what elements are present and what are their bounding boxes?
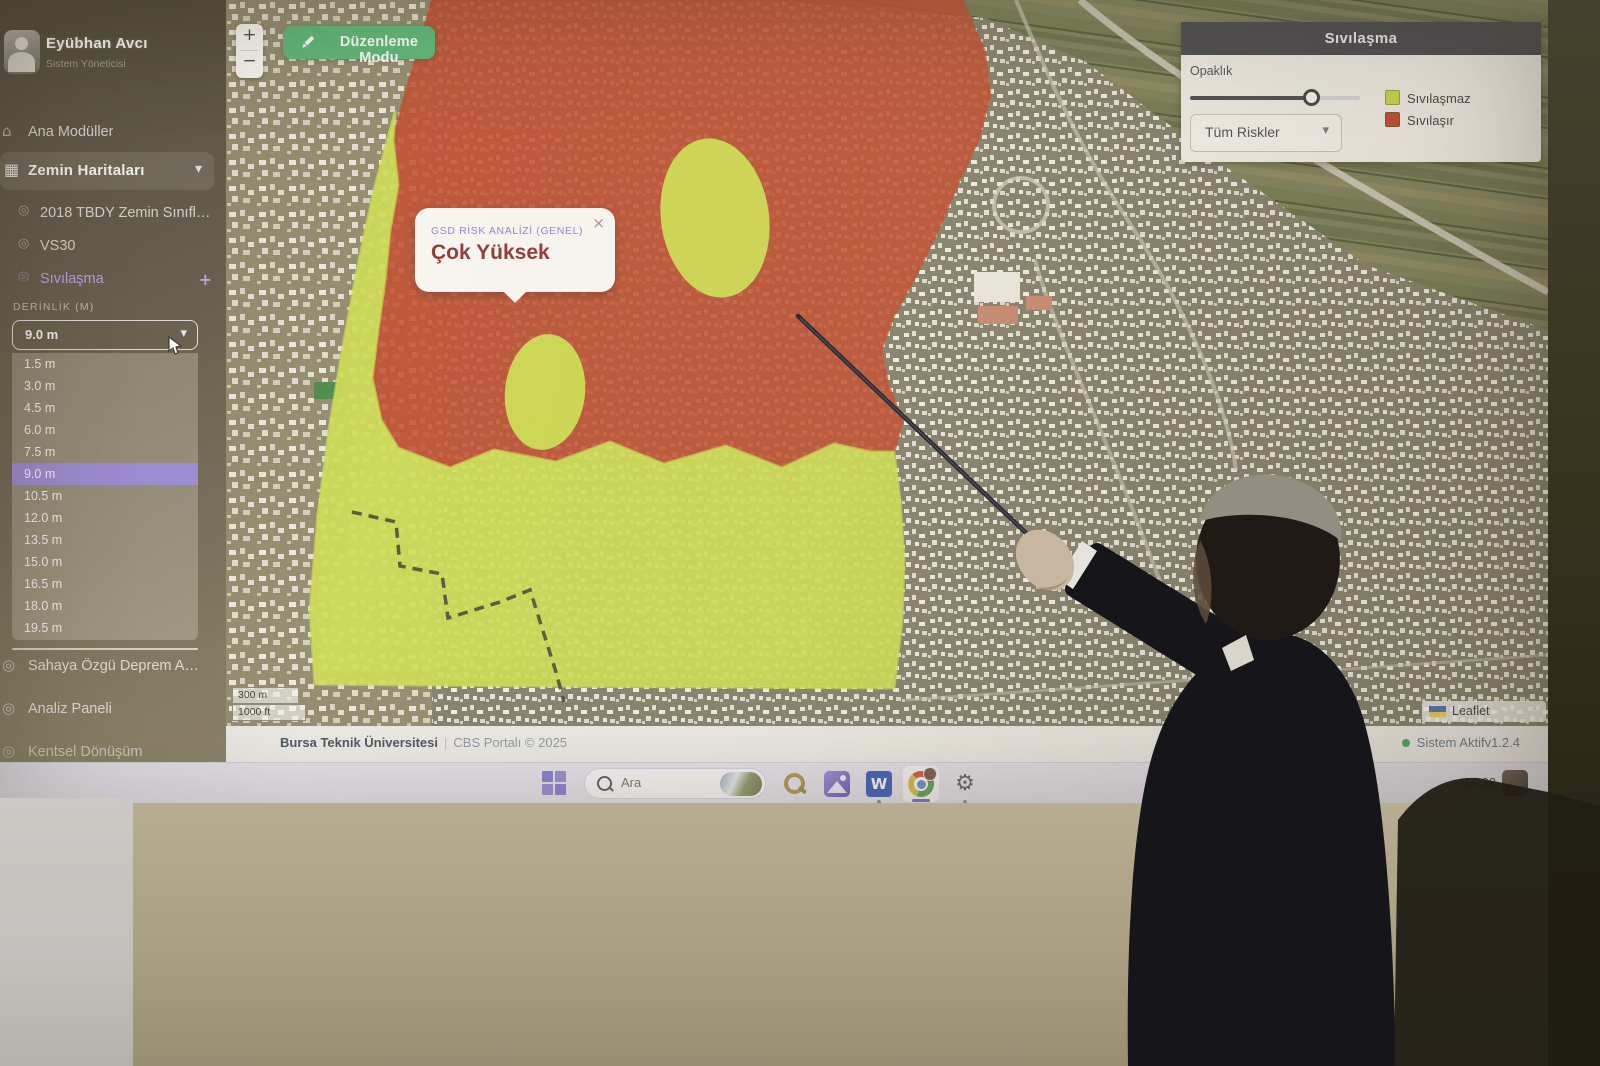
sidebar-item-zemin-haritalari[interactable]: ▦ Zemin Haritaları ▾	[0, 152, 214, 190]
depth-option[interactable]: 6.0 m	[12, 419, 198, 441]
status-dot	[1402, 739, 1410, 747]
analysis-icon: ◎	[2, 656, 15, 674]
leaflet-link[interactable]: Leaflet	[1452, 704, 1490, 718]
sidebar-item-sivilasma[interactable]: ◎ Sıvılaşma +	[0, 265, 226, 297]
layer-bullet-icon: ◎	[18, 203, 29, 218]
panel-icon: ◎	[2, 699, 15, 717]
depth-option[interactable]: 18.0 m	[12, 595, 198, 617]
app-footer: Bursa Teknik Üniversitesi|CBS Portalı © …	[226, 726, 1548, 762]
opacity-label: Opaklık	[1190, 64, 1232, 78]
word-app-icon[interactable]: W	[866, 771, 892, 797]
wall-corner-panel	[0, 798, 133, 1066]
user-role: Sistem Yöneticisi	[46, 58, 126, 70]
divider	[12, 648, 198, 650]
map-zoom-control: + −	[236, 24, 263, 78]
depth-option[interactable]: 10.5 m	[12, 485, 198, 507]
layer-panel: Sıvılaşma Opaklık Tüm Riskler ▾ Sıvılaşm…	[1181, 22, 1541, 162]
scalebar-metric: 300 m	[232, 687, 299, 704]
taskbar: W ⚙ 14:38	[0, 762, 1548, 804]
risk-filter-select[interactable]: Tüm Riskler ▾	[1190, 114, 1342, 152]
windows-start-button[interactable]	[542, 771, 567, 796]
chrome-active-indicator	[912, 799, 930, 802]
search-app-icon[interactable]	[782, 771, 808, 797]
chrome-profile-badge	[923, 767, 937, 781]
sidebar-item-2018-tbdy[interactable]: ◎ 2018 TBDY Zemin Sınıflandı...	[0, 199, 226, 231]
wall	[1548, 0, 1600, 1066]
depth-dropdown-list: 1.5 m 3.0 m 4.5 m 6.0 m 7.5 m 9.0 m 10.5…	[12, 353, 198, 640]
depth-option[interactable]: 16.5 m	[12, 573, 198, 595]
depth-option[interactable]: 7.5 m	[12, 441, 198, 463]
scalebar-imperial: 1000 ft	[232, 704, 306, 721]
sidebar-item-ana-moduller[interactable]: ⌂ Ana Modüller	[0, 118, 226, 150]
leaflet-attribution: Leaflet	[1422, 701, 1546, 722]
depth-option[interactable]: 19.5 m	[12, 617, 198, 639]
risk-popup: GSD RİSK ANALİZİ (GENEL) Çok Yüksek ×	[415, 208, 615, 292]
depth-option[interactable]: 3.0 m	[12, 375, 198, 397]
wall	[0, 803, 1548, 1066]
depth-option-selected[interactable]: 9.0 m	[12, 463, 198, 485]
photos-app-icon[interactable]	[824, 771, 850, 797]
close-icon[interactable]: ×	[592, 214, 605, 232]
depth-label: DERİNLİK (M)	[13, 301, 95, 313]
slider-knob[interactable]	[1303, 89, 1320, 106]
edit-mode-button[interactable]: Düzenleme Modu	[283, 26, 435, 59]
opacity-slider[interactable]	[1190, 94, 1360, 102]
pencil-icon	[301, 35, 316, 53]
map-canvas[interactable]: + − Düzenleme Modu GSD RİSK ANALİZİ (GEN…	[226, 0, 1548, 726]
system-status: Sistem Aktifv1.2.4	[1402, 735, 1520, 750]
depth-option[interactable]: 4.5 m	[12, 397, 198, 419]
ukraine-flag-icon	[1429, 706, 1446, 717]
layers-icon: ▦	[4, 160, 19, 179]
chevron-down-icon: ▾	[195, 161, 202, 177]
mouse-cursor-icon	[168, 336, 184, 361]
depth-option[interactable]: 12.0 m	[12, 507, 198, 529]
taskbar-clock[interactable]: 14:38	[1440, 775, 1496, 790]
zoom-in-button[interactable]: +	[236, 25, 263, 45]
search-input[interactable]	[619, 774, 703, 791]
sidebar-item-vs30[interactable]: ◎ VS30	[0, 232, 226, 264]
settings-app-icon[interactable]: ⚙	[952, 771, 978, 797]
search-icon	[597, 776, 612, 791]
tray-app-icon[interactable]	[1502, 770, 1528, 796]
depth-selected-value: 9.0 m	[25, 327, 58, 342]
legend-swatch-red	[1385, 112, 1400, 127]
projected-screen: Eyübhan Avcı Sistem Yöneticisi ⌂ Ana Mod…	[0, 0, 1548, 803]
search-highlight-thumbnail	[720, 772, 762, 796]
layer-bullet-icon: ◎	[18, 236, 29, 251]
legend-swatch-yellow	[1385, 90, 1400, 105]
layer-bullet-icon: ◎	[18, 269, 29, 284]
zoom-out-button[interactable]: −	[236, 51, 263, 71]
user-name: Eyübhan Avcı	[46, 35, 148, 52]
sidebar-item-sahaya-ozgu-deprem-analizi[interactable]: ◎ Sahaya Özgü Deprem Analizi	[0, 652, 226, 684]
avatar	[4, 30, 40, 74]
transform-icon: ◎	[2, 742, 15, 760]
popup-value: Çok Yüksek	[431, 241, 550, 265]
footer-portal: CBS Portalı © 2025	[453, 735, 567, 750]
photo-of-projected-screen: Eyübhan Avcı Sistem Yöneticisi ⌂ Ana Mod…	[0, 0, 1600, 1066]
panel-title: Sıvılaşma	[1181, 22, 1541, 55]
chevron-down-icon: ▾	[1322, 123, 1329, 138]
sidebar-item-analiz-paneli[interactable]: ◎ Analiz Paneli	[0, 695, 226, 727]
plus-icon[interactable]: +	[199, 270, 212, 289]
popup-title: GSD RİSK ANALİZİ (GENEL)	[431, 225, 583, 237]
sidebar: Eyübhan Avcı Sistem Yöneticisi ⌂ Ana Mod…	[0, 0, 226, 762]
taskbar-search[interactable]	[584, 768, 766, 799]
footer-org: Bursa Teknik Üniversitesi	[280, 735, 438, 750]
chrome-app-icon[interactable]	[908, 771, 934, 797]
home-icon: ⌂	[2, 122, 12, 140]
depth-option[interactable]: 15.0 m	[12, 551, 198, 573]
depth-option[interactable]: 13.5 m	[12, 529, 198, 551]
